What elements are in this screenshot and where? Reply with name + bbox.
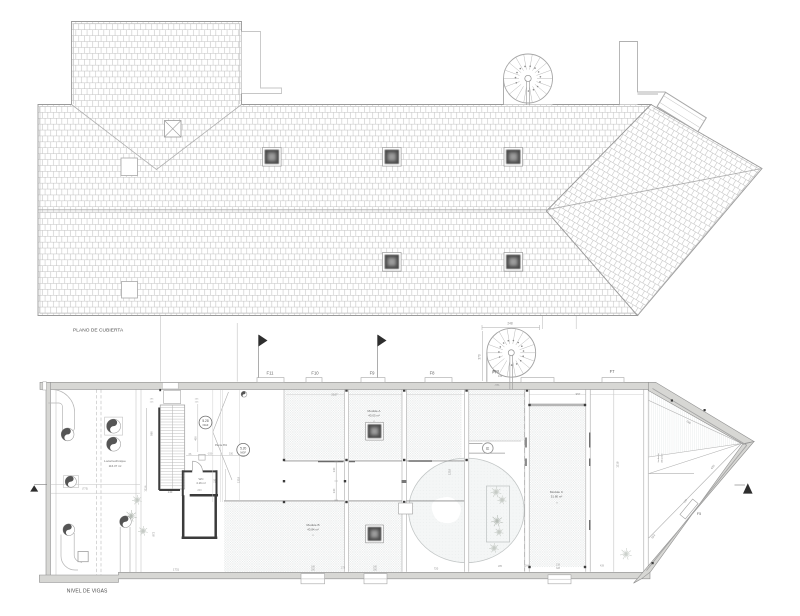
svg-text:WC: WC — [199, 477, 205, 481]
svg-text:400: 400 — [193, 436, 197, 441]
svg-text:PF8: PF8 — [493, 370, 499, 374]
svg-text:285: 285 — [498, 565, 503, 568]
svg-text:140: 140 — [332, 488, 336, 493]
svg-text:5.20: 5.20 — [240, 446, 246, 450]
svg-text:530: 530 — [229, 452, 234, 455]
svg-text:280: 280 — [373, 569, 378, 572]
svg-text:F5: F5 — [697, 512, 701, 516]
svg-text:428: 428 — [600, 565, 605, 568]
svg-text:370: 370 — [478, 354, 482, 360]
svg-text:51.80 m²: 51.80 m² — [551, 495, 562, 499]
svg-text:NGF: NGF — [240, 450, 246, 454]
svg-text:957: 957 — [576, 392, 581, 396]
svg-text:5.28: 5.28 — [202, 419, 208, 423]
svg-text:1318: 1318 — [237, 476, 241, 483]
svg-text:NIVEL DE VIGAS: NIVEL DE VIGAS — [67, 589, 108, 595]
svg-text:1218: 1218 — [616, 461, 620, 468]
svg-text:4.16 m²: 4.16 m² — [196, 481, 206, 485]
svg-text:116.37 m²: 116.37 m² — [109, 464, 122, 468]
svg-text:PLANO DE CUBIERTA: PLANO DE CUBIERTA — [73, 328, 124, 334]
svg-text:150: 150 — [214, 478, 217, 483]
svg-text:F9: F9 — [370, 371, 376, 376]
svg-text:-785-: -785- — [494, 384, 500, 387]
svg-text:140: 140 — [168, 490, 173, 494]
svg-text:(775): (775) — [82, 487, 88, 491]
svg-text:F8: F8 — [430, 371, 436, 376]
svg-text:140: 140 — [332, 467, 336, 472]
svg-text:1731: 1731 — [173, 568, 180, 572]
svg-text:1316: 1316 — [144, 485, 148, 492]
svg-text:218: 218 — [556, 564, 561, 567]
svg-text:Local technique: Local technique — [104, 459, 126, 463]
svg-text:280: 280 — [311, 569, 316, 572]
svg-text:43.84 m²: 43.84 m² — [307, 528, 318, 532]
svg-text:872: 872 — [152, 531, 156, 536]
svg-text:273: 273 — [341, 567, 346, 570]
svg-text:264: 264 — [525, 565, 530, 568]
svg-text:2107: 2107 — [331, 393, 338, 397]
svg-text:134: 134 — [498, 374, 503, 378]
svg-text:200: 200 — [197, 489, 202, 492]
svg-text:F7: F7 — [610, 369, 616, 374]
svg-text:328: 328 — [556, 567, 561, 570]
svg-text:Pente 8%: Pente 8% — [215, 443, 228, 447]
svg-text:1218: 1218 — [448, 468, 452, 475]
svg-text:E: E — [486, 446, 489, 451]
svg-text:-193-: -193- — [207, 452, 213, 455]
svg-text:980: 980 — [150, 431, 154, 436]
svg-text:F10: F10 — [311, 371, 319, 376]
svg-text:Module B: Module B — [306, 523, 319, 527]
svg-text:43.03 m²: 43.03 m² — [368, 414, 379, 418]
svg-text:248: 248 — [507, 322, 513, 326]
svg-text:720: 720 — [434, 567, 439, 571]
svg-text:Module A: Module A — [368, 409, 382, 413]
svg-text:NGF: NGF — [203, 423, 209, 427]
svg-text:Module C: Module C — [550, 490, 564, 494]
svg-text:F11: F11 — [267, 371, 275, 376]
